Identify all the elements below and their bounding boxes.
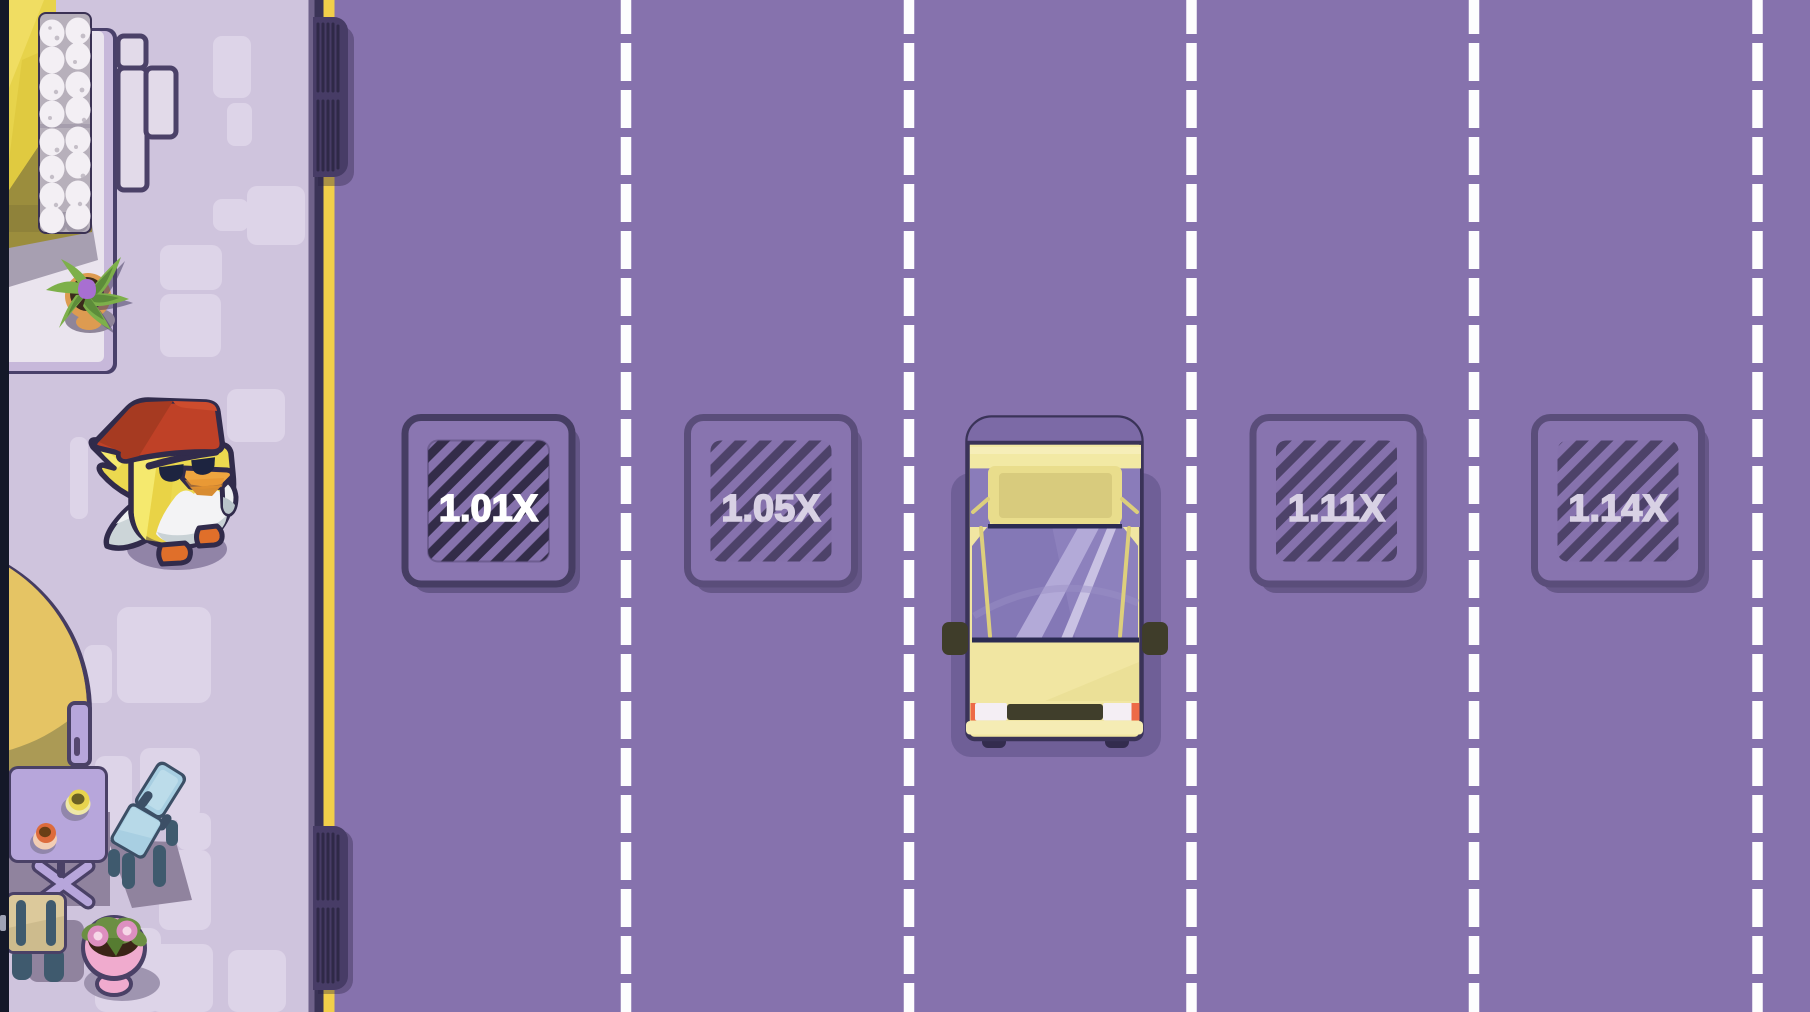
- svg-text:1.11X: 1.11X: [1288, 488, 1386, 530]
- svg-text:1.05X: 1.05X: [721, 488, 821, 530]
- svg-text:1.01X: 1.01X: [439, 488, 539, 530]
- svg-text:1.14X: 1.14X: [1568, 488, 1668, 530]
